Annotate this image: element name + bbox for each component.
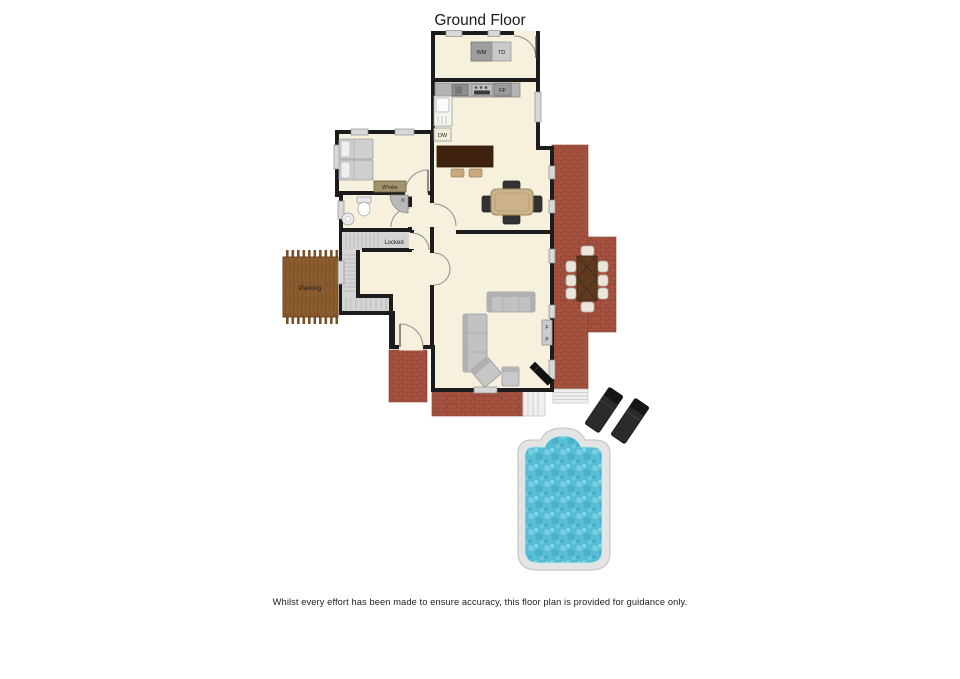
- basin-icon: [342, 213, 354, 225]
- floor-plan-canvas: Parking: [0, 0, 960, 679]
- side-chair: [502, 367, 519, 386]
- utility-room: WM TD: [471, 42, 511, 61]
- floor-plan-page: Ground Floor: [0, 0, 960, 679]
- bed-2: [339, 160, 373, 180]
- sink-unit: [434, 96, 452, 126]
- outdoor-table: [577, 256, 597, 301]
- parking-deck: Parking: [283, 250, 338, 324]
- wardrobe-label: W'robe: [382, 185, 398, 191]
- sofa-horizontal: [487, 292, 535, 312]
- terrace-steps: [523, 389, 588, 416]
- ff-label: FF: [499, 88, 506, 94]
- toilet-icon: [357, 197, 371, 216]
- disclaimer-text: Whilst every effort has been made to ens…: [0, 597, 960, 607]
- bed-1: [339, 139, 373, 159]
- parking-label: Parking: [299, 285, 321, 292]
- fireplace-label-f: F: [545, 325, 548, 331]
- locked-label: Locked: [384, 240, 403, 246]
- fireplace-unit: F P: [542, 320, 552, 345]
- wardrobe: W'robe: [374, 181, 406, 192]
- td-label: TD: [498, 50, 505, 56]
- wm-label: WM: [477, 50, 487, 56]
- dw-label: DW: [438, 133, 448, 139]
- swimming-pool: [518, 428, 610, 570]
- hob-icon: [472, 85, 492, 96]
- sun-loungers: [585, 387, 650, 444]
